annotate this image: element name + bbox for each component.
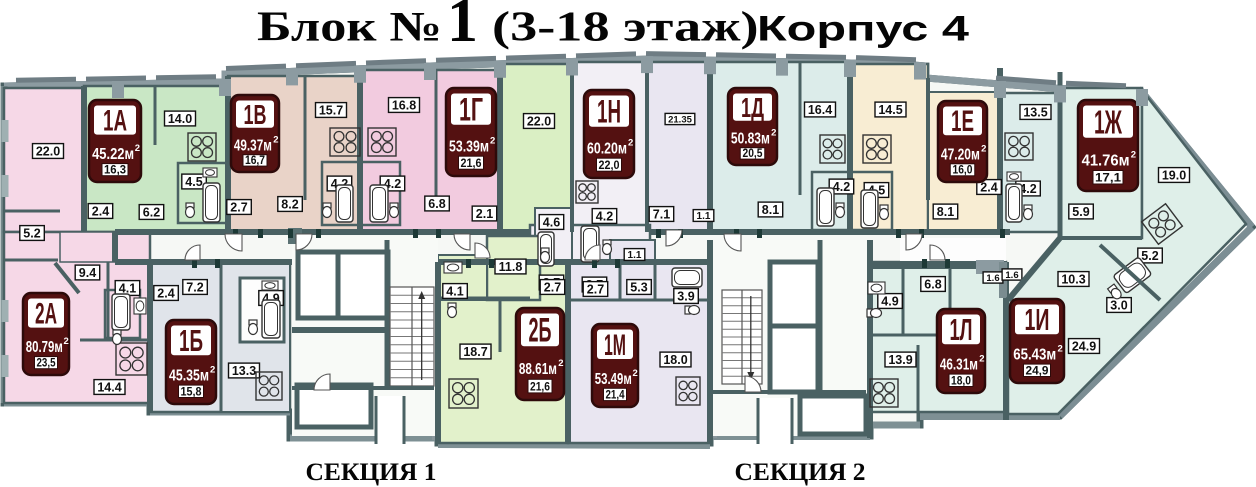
svg-text:4.2: 4.2 xyxy=(596,210,613,224)
svg-text:1.1: 1.1 xyxy=(628,250,642,261)
svg-text:24.9: 24.9 xyxy=(1072,340,1096,354)
svg-text:16.8: 16.8 xyxy=(392,99,416,113)
svg-text:1Б: 1Б xyxy=(179,323,203,358)
svg-text:2.4: 2.4 xyxy=(92,205,109,219)
svg-text:2: 2 xyxy=(1131,150,1136,161)
svg-text:7.1: 7.1 xyxy=(653,208,670,222)
svg-text:2: 2 xyxy=(490,135,495,146)
svg-text:18,0: 18,0 xyxy=(951,375,971,387)
svg-text:Корпус 4: Корпус 4 xyxy=(757,9,969,48)
svg-text:2: 2 xyxy=(210,365,215,376)
svg-text:Блок №: Блок № xyxy=(257,4,442,50)
svg-text:21,6: 21,6 xyxy=(530,382,550,394)
svg-text:13.9: 13.9 xyxy=(888,353,912,367)
svg-text:14.0: 14.0 xyxy=(168,112,192,126)
svg-text:15.7: 15.7 xyxy=(319,104,343,118)
svg-text:50.83м: 50.83м xyxy=(731,130,770,147)
svg-text:22.0: 22.0 xyxy=(36,145,60,159)
svg-text:2.7: 2.7 xyxy=(230,201,247,215)
svg-text:60.20м: 60.20м xyxy=(587,140,627,157)
svg-text:2.7: 2.7 xyxy=(587,283,604,297)
svg-text:8.1: 8.1 xyxy=(937,205,954,219)
svg-text:1Н: 1Н xyxy=(597,93,621,129)
svg-text:2А: 2А xyxy=(35,298,57,331)
svg-text:СЕКЦИЯ 1: СЕКЦИЯ 1 xyxy=(305,457,436,486)
svg-text:2.1: 2.1 xyxy=(476,207,493,221)
svg-text:1И: 1И xyxy=(1025,302,1050,337)
svg-text:5.2: 5.2 xyxy=(1141,249,1158,263)
svg-text:53.39м: 53.39м xyxy=(449,138,489,155)
svg-text:6.8: 6.8 xyxy=(428,197,445,211)
svg-text:1Л: 1Л xyxy=(950,312,973,347)
svg-text:21,4: 21,4 xyxy=(606,389,626,401)
svg-text:88.61м: 88.61м xyxy=(519,361,557,378)
svg-text:22,0: 22,0 xyxy=(599,160,620,172)
svg-text:1М: 1М xyxy=(604,329,626,362)
svg-text:2: 2 xyxy=(1058,344,1063,355)
svg-text:17,1: 17,1 xyxy=(1095,173,1122,185)
svg-text:41.76м: 41.76м xyxy=(1082,153,1130,170)
svg-text:2: 2 xyxy=(633,368,638,379)
svg-text:5.2: 5.2 xyxy=(23,227,40,241)
svg-text:4.1: 4.1 xyxy=(446,285,463,299)
svg-text:13.5: 13.5 xyxy=(1023,106,1047,120)
svg-text:16,0: 16,0 xyxy=(953,165,973,177)
svg-text:3.9: 3.9 xyxy=(677,290,694,304)
svg-text:20,5: 20,5 xyxy=(743,148,764,160)
svg-text:4.5: 4.5 xyxy=(185,175,202,189)
svg-text:1.1: 1.1 xyxy=(697,211,711,222)
svg-text:9.4: 9.4 xyxy=(79,266,96,280)
svg-text:2Б: 2Б xyxy=(529,312,552,350)
svg-text:14.5: 14.5 xyxy=(878,103,902,117)
svg-text:2: 2 xyxy=(64,336,69,347)
svg-text:14.4: 14.4 xyxy=(97,381,121,395)
svg-text:24,9: 24,9 xyxy=(1026,365,1049,377)
svg-text:2: 2 xyxy=(135,143,140,154)
svg-text:2.4: 2.4 xyxy=(157,287,174,301)
svg-text:2.7: 2.7 xyxy=(544,281,561,295)
svg-text:2.4: 2.4 xyxy=(980,181,997,195)
svg-text:18.0: 18.0 xyxy=(663,353,687,367)
svg-text:8.1: 8.1 xyxy=(762,203,779,217)
svg-text:3.0: 3.0 xyxy=(1110,299,1127,313)
svg-text:47.20м: 47.20м xyxy=(941,146,980,163)
svg-text:1Г: 1Г xyxy=(459,91,483,127)
svg-text:5.3: 5.3 xyxy=(630,281,647,295)
svg-text:2: 2 xyxy=(981,143,986,154)
svg-text:49.37м: 49.37м xyxy=(234,137,272,154)
svg-text:2: 2 xyxy=(628,137,633,148)
svg-text:45.35м: 45.35м xyxy=(169,368,209,385)
svg-text:1Д: 1Д xyxy=(741,92,764,123)
svg-text:4.9: 4.9 xyxy=(881,295,898,309)
svg-text:13.3: 13.3 xyxy=(232,364,256,378)
svg-text:1Е: 1Е xyxy=(951,105,974,138)
svg-text:7.2: 7.2 xyxy=(186,281,203,295)
svg-text:15,8: 15,8 xyxy=(181,386,203,398)
svg-text:16.4: 16.4 xyxy=(808,103,832,117)
svg-text:СЕКЦИЯ 2: СЕКЦИЯ 2 xyxy=(734,457,865,486)
svg-text:16,3: 16,3 xyxy=(104,165,126,177)
svg-text:10.3: 10.3 xyxy=(1061,273,1085,287)
svg-text:18.7: 18.7 xyxy=(463,345,487,359)
svg-text:16,7: 16,7 xyxy=(245,155,265,167)
svg-text:(3-18 этаж): (3-18 этаж) xyxy=(492,4,759,50)
svg-text:1В: 1В xyxy=(244,99,267,130)
svg-text:4.2: 4.2 xyxy=(833,180,850,194)
svg-text:53.49м: 53.49м xyxy=(595,371,632,388)
svg-text:2: 2 xyxy=(771,127,776,138)
svg-text:6.8: 6.8 xyxy=(924,278,941,292)
svg-text:2: 2 xyxy=(558,358,563,369)
svg-text:65.43м: 65.43м xyxy=(1013,347,1056,364)
svg-text:1.6: 1.6 xyxy=(1005,270,1018,281)
svg-text:2: 2 xyxy=(273,134,278,145)
svg-text:2: 2 xyxy=(979,354,984,365)
svg-text:19.0: 19.0 xyxy=(1162,169,1186,183)
svg-text:1А: 1А xyxy=(103,105,127,138)
svg-text:1Ж: 1Ж xyxy=(1094,103,1122,140)
svg-text:5.9: 5.9 xyxy=(1072,205,1089,219)
svg-text:23,5: 23,5 xyxy=(37,358,57,370)
svg-text:6.2: 6.2 xyxy=(143,206,160,220)
svg-text:8.2: 8.2 xyxy=(281,198,298,212)
svg-text:21,6: 21,6 xyxy=(461,158,482,170)
svg-text:21.35: 21.35 xyxy=(668,114,692,125)
svg-text:80.79м: 80.79м xyxy=(26,339,63,356)
svg-text:45.22м: 45.22м xyxy=(92,146,134,163)
svg-text:46.31м: 46.31м xyxy=(940,357,978,374)
svg-text:22.0: 22.0 xyxy=(527,115,551,129)
svg-text:1.6: 1.6 xyxy=(986,273,999,284)
svg-text:11.8: 11.8 xyxy=(499,260,523,274)
svg-text:4.6: 4.6 xyxy=(543,216,560,230)
svg-text:1: 1 xyxy=(447,0,478,55)
